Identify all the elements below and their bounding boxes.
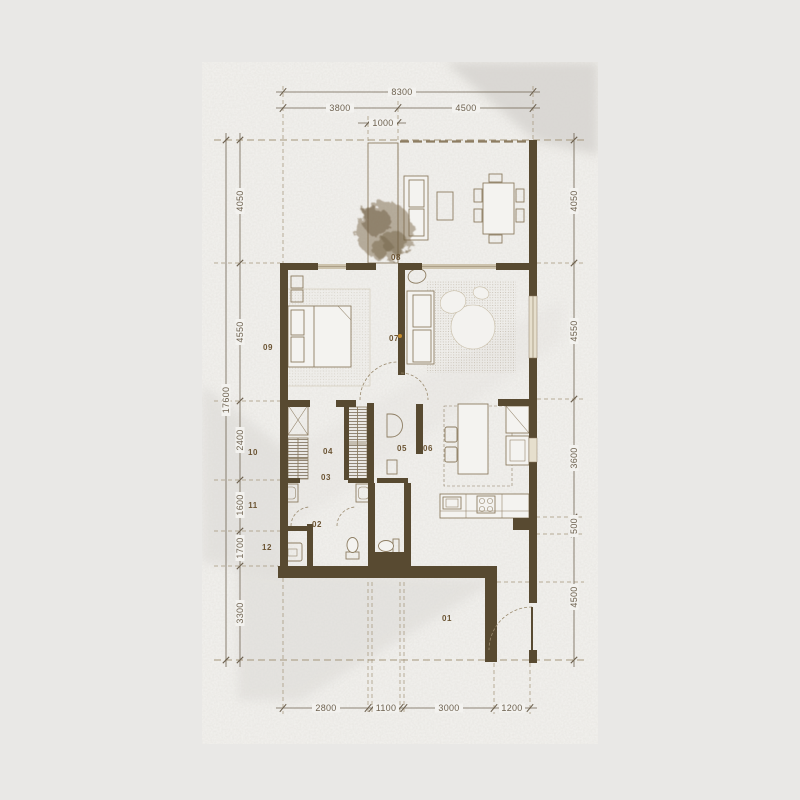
room-label-03: 03 <box>321 473 331 482</box>
living-sofa <box>407 291 434 364</box>
dim-left-1600: 1600 <box>235 494 245 515</box>
kitchen-counter <box>440 494 529 518</box>
dim-top-3800: 3800 <box>329 103 350 113</box>
bed <box>286 303 351 370</box>
tree-symbol <box>356 202 414 260</box>
dim-left-2400: 2400 <box>235 429 245 450</box>
dim-left-4550: 4550 <box>235 321 245 342</box>
room-label-04: 04 <box>323 447 333 456</box>
room-label-08: 08 <box>391 253 401 262</box>
dim-left-17600: 17600 <box>221 387 231 414</box>
room-label-02: 02 <box>312 520 322 529</box>
dim-right-4050: 4050 <box>569 190 579 211</box>
dim-right-4550: 4550 <box>569 320 579 341</box>
dim-right-4500: 4500 <box>569 586 579 607</box>
room-label-07: 07 <box>389 334 399 343</box>
room-label-06: 06 <box>423 444 433 453</box>
dim-right-500: 500 <box>569 518 579 534</box>
floor-plan-drawing: 8300 3800 4500 1000 17600 4050 4550 2400… <box>0 0 800 800</box>
room-label-12: 12 <box>262 543 272 552</box>
room-label-11: 11 <box>248 501 258 510</box>
dim-bottom-1100: 1100 <box>376 703 397 713</box>
dim-right-3600: 3600 <box>569 447 579 468</box>
dim-top-1000: 1000 <box>372 118 393 128</box>
dim-bottom-3000: 3000 <box>438 703 459 713</box>
dim-left-3300: 3300 <box>235 602 245 623</box>
dim-bottom-2800: 2800 <box>315 703 336 713</box>
room-label-01: 01 <box>442 614 452 623</box>
room-label-05: 05 <box>397 444 407 453</box>
dim-left-4050: 4050 <box>235 190 245 211</box>
dim-top-8300: 8300 <box>391 87 412 97</box>
room-label-10: 10 <box>248 448 258 457</box>
kitchen-island <box>458 404 488 474</box>
dim-top-4500: 4500 <box>455 103 476 113</box>
kitchen-window <box>529 438 537 462</box>
dim-left-1700: 1700 <box>235 537 245 558</box>
room-label-09: 09 <box>263 343 273 352</box>
dim-bottom-1200: 1200 <box>501 703 522 713</box>
